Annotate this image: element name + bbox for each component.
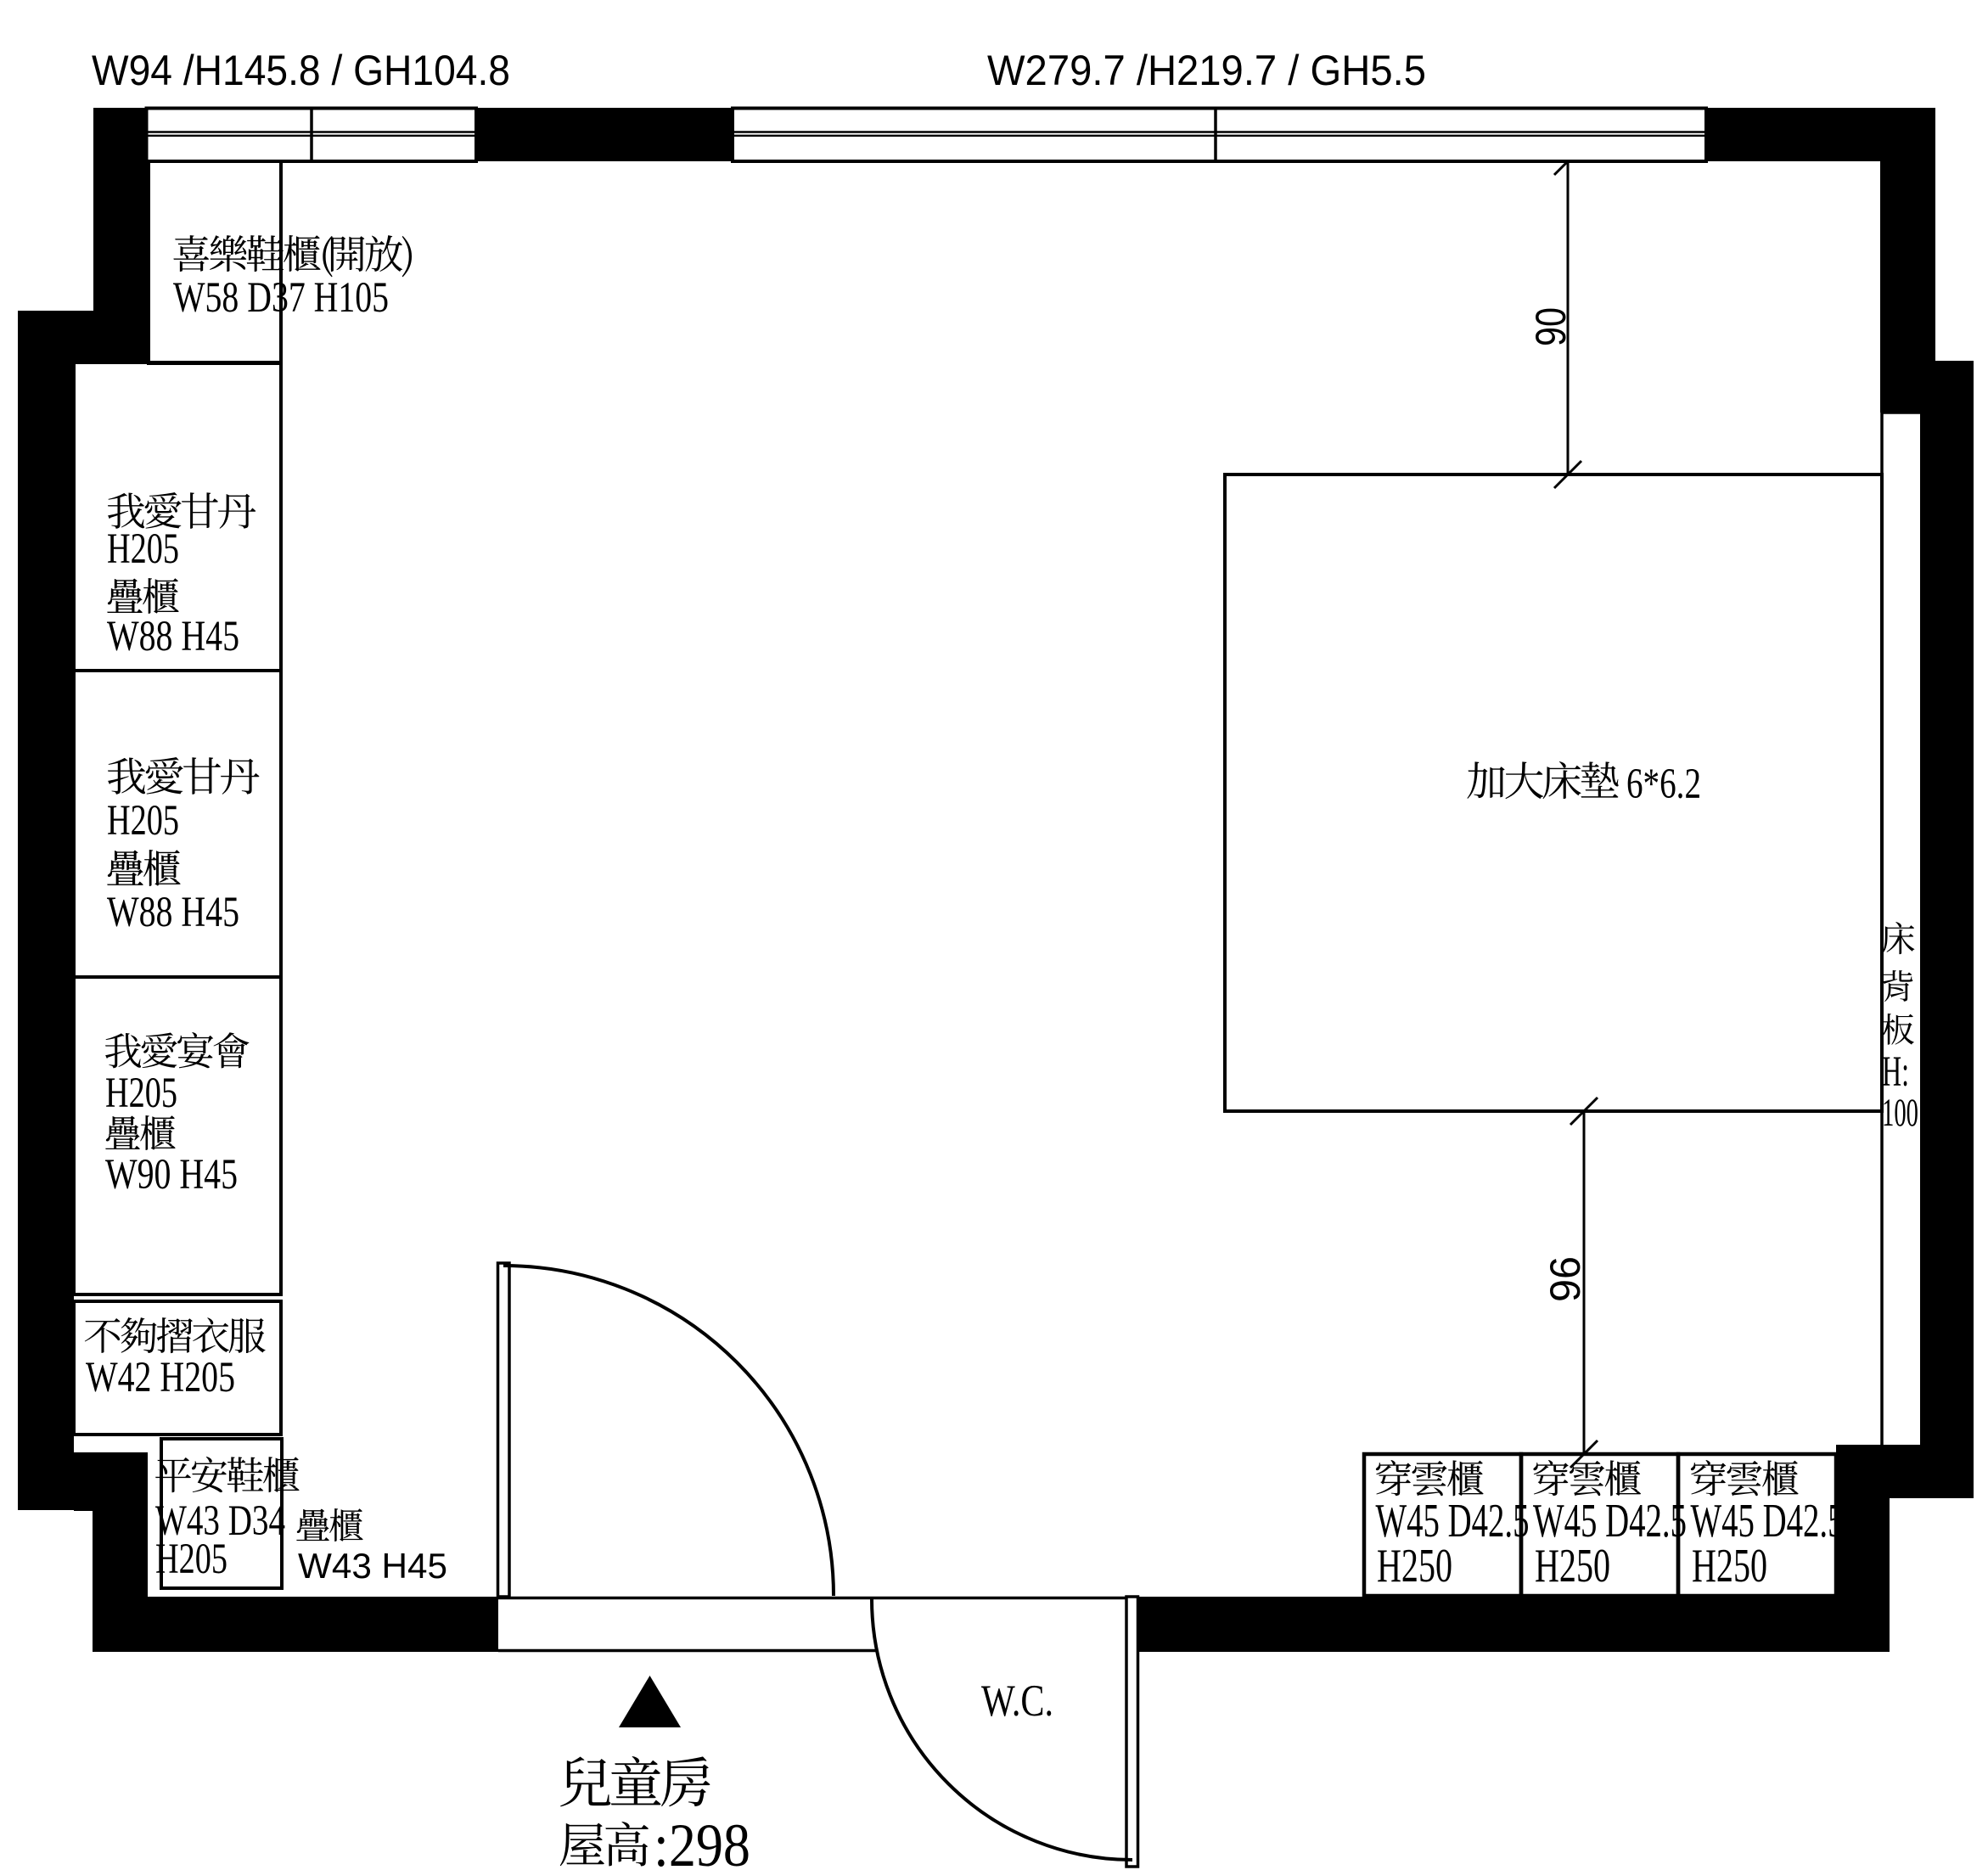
svg-text:H250: H250 xyxy=(1692,1540,1767,1592)
svg-text:96: 96 xyxy=(1542,1256,1589,1302)
svg-text:W42 H205: W42 H205 xyxy=(86,1354,235,1401)
svg-text:W43 H45: W43 H45 xyxy=(298,1546,447,1586)
svg-text:W88 H45: W88 H45 xyxy=(107,613,239,660)
svg-text:W.C.: W.C. xyxy=(981,1676,1053,1726)
svg-text:90: 90 xyxy=(1527,307,1575,346)
svg-text:W94 /H145.8 / GH104.8: W94 /H145.8 / GH104.8 xyxy=(92,47,510,94)
svg-text:H:: H: xyxy=(1882,1048,1909,1096)
svg-text:6*6.2: 6*6.2 xyxy=(1626,761,1701,808)
svg-text:W88 H45: W88 H45 xyxy=(107,889,239,936)
svg-text:H205: H205 xyxy=(105,1070,177,1117)
svg-text:H205: H205 xyxy=(107,525,179,573)
svg-text:W279.7 /H219.7 / GH5.5: W279.7 /H219.7 / GH5.5 xyxy=(987,47,1426,94)
svg-text::298: :298 xyxy=(654,1811,750,1870)
svg-text:100: 100 xyxy=(1882,1091,1918,1135)
svg-text:W58 D37 H105: W58 D37 H105 xyxy=(173,274,389,322)
svg-text:W90 H45: W90 H45 xyxy=(105,1151,238,1199)
svg-text:H250: H250 xyxy=(1377,1540,1452,1592)
svg-text:H205: H205 xyxy=(107,797,179,845)
svg-text:H250: H250 xyxy=(1535,1540,1610,1592)
svg-text:H205: H205 xyxy=(155,1536,227,1583)
